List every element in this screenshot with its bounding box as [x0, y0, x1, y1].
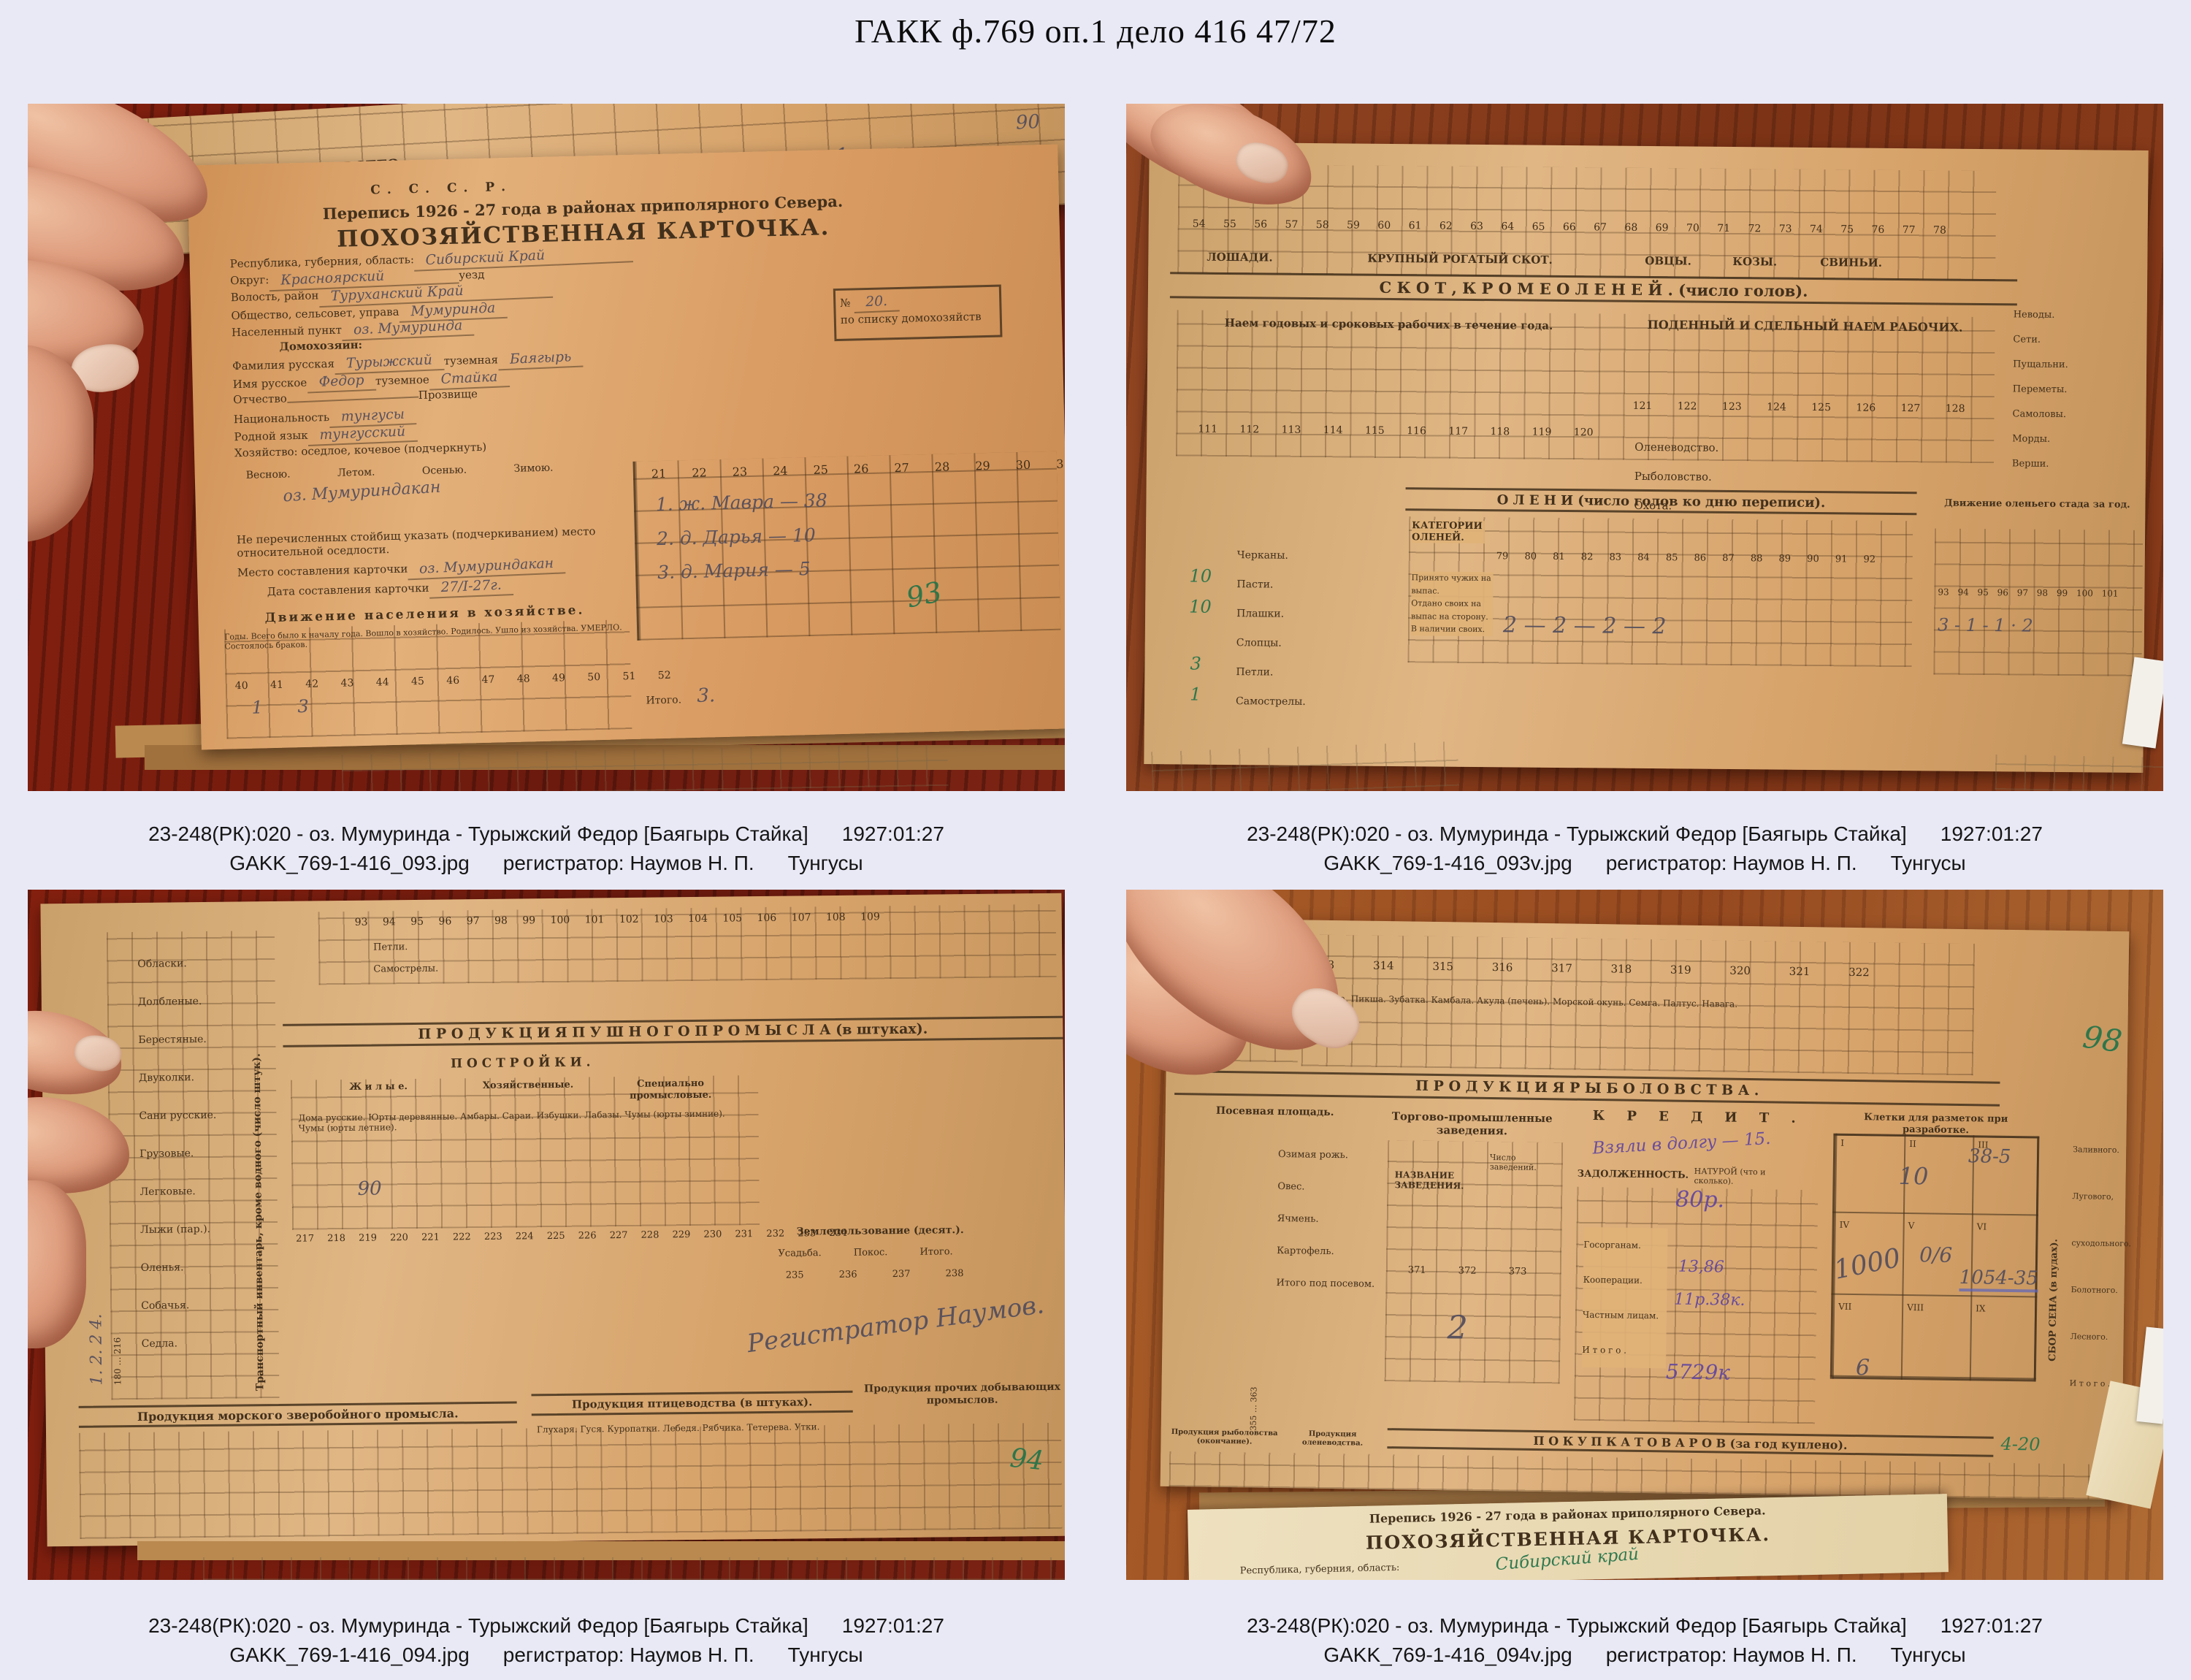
handwriting: оз. Мумуринда: [341, 318, 474, 341]
document-page: 54 55 56 57 58 59 60 61 62 63 64 65 66 6…: [1144, 142, 2148, 773]
handwriting: 10: [1189, 597, 1212, 617]
handwriting: 1 3: [251, 696, 309, 718]
table-label: ЗАДОЛЖЕННОСТЬ.: [1578, 1169, 1672, 1181]
table-grid: [1385, 1140, 1564, 1383]
document-page: 93 94 95 96 97 98 99 100 101 102 103 104…: [40, 893, 1065, 1547]
row-labels: Обласки. Долбленые. Берестяные. Двуколки…: [137, 944, 251, 1363]
list-number-box: № 20. по списку домохозяйств: [833, 285, 1003, 342]
caption-catalog: 23-248(РК):020 - оз. Мумуринда - Турыжск…: [1247, 1614, 1907, 1637]
table-grid: [291, 1075, 760, 1230]
section-band: Продукция птицеводства (в штуках).: [531, 1391, 852, 1416]
row-labels: Петли. Самострелы.: [373, 936, 438, 981]
note-text: Не перечисленных стойбищ указать (подчер…: [237, 524, 646, 560]
handwriting: 1: [1190, 684, 1201, 705]
table-grid: [1933, 528, 2143, 676]
column-numbers: 355 … 363: [1249, 1138, 1263, 1430]
row-labels: Заливного. Лугового, суходольного. Болот…: [2069, 1126, 2127, 1408]
section-band: П Р О Д У К Ц И Я П У Ш Н О Г О П Р О М …: [283, 1016, 1063, 1047]
movement-total-label: Итого.: [646, 694, 681, 707]
handwriting: 4-20: [2000, 1434, 2040, 1455]
handwriting: [287, 396, 418, 403]
document-page: С. С. С. Р. Перепись 1926 - 27 года в ра…: [187, 145, 1065, 750]
caption-registrar: регистратор: Наумов Н. П.: [503, 1643, 754, 1666]
photo-caption-094v: 23-248(РК):020 - оз. Мумуринда - Турыжск…: [1126, 1611, 2163, 1670]
handwriting: оз. Мумуриндакан: [408, 555, 566, 580]
section-header: Посевная площадь.: [1180, 1104, 1370, 1119]
section-band: Продукция морского зверобойного промысла…: [79, 1402, 517, 1428]
caption-date: 1927:01:27: [1940, 1614, 2043, 1637]
photo-caption-094: 23-248(РК):020 - оз. Мумуринда - Турыжск…: [28, 1611, 1065, 1670]
caption-file: GAKK_769-1-416_094v.jpg: [1323, 1643, 1572, 1666]
sheet-number: 94: [1009, 1443, 1045, 1477]
caption-catalog: 23-248(РК):020 - оз. Мумуринда - Турыжск…: [148, 822, 808, 845]
sheet-number: 98: [2081, 1019, 2125, 1060]
handwriting: 90: [357, 1177, 381, 1199]
deer-categories-label: КАТЕГОРИИ ОЛЕНЕЙ.: [1412, 520, 1485, 543]
caption-line-2: GAKK_769-1-416_093v.jpgрегистратор: Наум…: [1126, 849, 2163, 878]
handwriting: 5729к: [1666, 1359, 1730, 1384]
handwriting: 3: [1190, 654, 1201, 674]
registrar-signature: Регистратор Наумов.: [746, 1290, 1046, 1359]
photo-caption-093v: 23-248(РК):020 - оз. Мумуринда - Турыжск…: [1126, 820, 2163, 878]
caption-catalog: 23-248(РК):020 - оз. Мумуринда - Турыжск…: [1247, 822, 1907, 845]
photo-094v[interactable]: Добыто за год. ВСЕГО. Госорганам. Коопер…: [1126, 890, 2163, 1580]
handwriting: 3.: [697, 684, 716, 707]
paper-slip: [2136, 1326, 2163, 1424]
caption-line-1: 23-248(РК):020 - оз. Мумуринда - Турыжск…: [28, 820, 1065, 849]
section-header: Продукция рыболовства (окончание).: [1169, 1428, 1279, 1447]
section-header: Торгово-промышленные заведения.: [1384, 1110, 1559, 1138]
handwriting: 20.: [854, 293, 900, 313]
handwriting: 1054-35: [1959, 1267, 2038, 1293]
row-labels: Неводы. Сети. Пущальни. Переметы. Самоло…: [2012, 302, 2108, 477]
group-header: СВИНЬИ.: [1820, 256, 1882, 270]
handwriting: оз. Мумуриндакан: [283, 478, 441, 506]
section-header: Продукция оленеводства.: [1285, 1429, 1380, 1448]
row-labels: Принято чужих на выпас. Отдано своих на …: [1411, 571, 1494, 636]
roman-numeral: IV: [1840, 1220, 1850, 1231]
row-labels: Озимая рожь. Овес. Ячмень. Картофель. Ит…: [1276, 1139, 1388, 1301]
column-labels: Усадьба. Покос. Итого.: [778, 1246, 952, 1259]
photo-caption-093: 23-248(РК):020 - оз. Мумуринда - Турыжск…: [28, 820, 1065, 878]
list-number-label: №: [840, 297, 851, 310]
roman-numeral: V: [1908, 1221, 1915, 1232]
caption-line-2: GAKK_769-1-416_094v.jpgрегистратор: Наум…: [1126, 1641, 2163, 1670]
photo-093v[interactable]: 54 55 56 57 58 59 60 61 62 63 64 65 66 6…: [1126, 104, 2163, 791]
handwriting: 13,86: [1678, 1258, 1724, 1277]
caption-registrar: регистратор: Наумов Н. П.: [1606, 852, 1857, 874]
caption-line-1: 23-248(РК):020 - оз. Мумуринда - Турыжск…: [1126, 1611, 2163, 1641]
graph-paper-sheet: [1995, 755, 2163, 791]
archive-page: { "page": { "title": "ГАКК ф.769 оп.1 де…: [0, 0, 2191, 1680]
column-numbers: 93 94 95 96 97 98 99 100 101: [1938, 587, 2118, 598]
section-header: Движение оленьего стада за год.: [1931, 497, 2143, 511]
caption-registrar: регистратор: Наумов Н. П.: [503, 852, 754, 874]
caption-ethnos: Тунгусы: [1891, 1643, 1966, 1666]
caption-date: 1927:01:27: [842, 822, 944, 845]
photo-093[interactable]: ВСЕГО. Добыто за год. 100. 1. 90 С. С. С…: [28, 104, 1065, 791]
handwriting: 2. д. Дарья — 10: [657, 524, 816, 549]
land-title: Землепользование (десят.).: [774, 1224, 986, 1239]
group-header: КРУПНЫЙ РОГАТЫЙ СКОТ.: [1367, 252, 1553, 267]
caption-date: 1927:01:27: [842, 1614, 944, 1637]
section-band: О Л Е Н И (число голов ко дню переписи).: [1405, 487, 1916, 515]
handwriting: 2 — 2 — 2 — 2: [1503, 612, 1667, 639]
form-label: Республика, губерния, область:: [1240, 1562, 1400, 1577]
section-header: Продукция прочих добывающих промыслов.: [863, 1381, 1060, 1408]
handwriting: 0/6: [1919, 1242, 1953, 1267]
section-header-vertical: СБОР СЕНА (в пудах).: [2047, 1120, 2062, 1362]
table-label: НАТУРОЙ (что и сколько).: [1694, 1167, 1789, 1187]
ussr-header: С. С. С. Р.: [370, 180, 512, 198]
roman-numeral: IX: [1976, 1303, 1985, 1314]
handwriting: 27/I-27г.: [429, 577, 513, 598]
form-row: Домохозяин:: [279, 338, 362, 354]
group-header: ОВЦЫ.: [1645, 254, 1691, 268]
roman-numeral: VI: [1977, 1221, 1987, 1232]
handwriting: 3 - 1 - 1 · 2: [1938, 614, 2033, 635]
tissue-sheet: [203, 1557, 1065, 1580]
next-card-top: Перепись 1926 - 27 года в районах припол…: [1188, 1494, 1949, 1580]
group-header: КОЗЫ.: [1732, 255, 1777, 269]
handwriting: 10: [1189, 566, 1212, 587]
section-header: П О С Т Р О Й К И .: [283, 1053, 758, 1073]
handwriting: 2: [1447, 1309, 1468, 1346]
caption-registrar: регистратор: Наумов Н. П.: [1606, 1643, 1857, 1666]
caption-ethnos: Тунгусы: [788, 1643, 863, 1666]
seasons-header: Весною. Летом. Осенью. Зимою.: [246, 462, 554, 481]
caption-file: GAKK_769-1-416_093.jpg: [229, 852, 469, 874]
roman-numeral: I: [1840, 1138, 1844, 1148]
handwriting: Взяли в долгу — 15.: [1592, 1129, 1771, 1158]
handwriting: Баягырь: [497, 349, 583, 370]
row-labels: Госорганам. Кооперации. Частным лицам. И…: [1582, 1227, 1668, 1369]
caption-line-2: GAKK_769-1-416_094.jpgрегистратор: Наумо…: [28, 1641, 1065, 1670]
row-labels: Черканы. Пасти. Плашки. Слопцы. Петли. С…: [1236, 541, 1339, 717]
caption-line-1: 23-248(РК):020 - оз. Мумуринда - Турыжск…: [28, 1611, 1065, 1641]
caption-ethnos: Тунгусы: [788, 852, 863, 874]
caption-catalog: 23-248(РК):020 - оз. Мумуринда - Турыжск…: [148, 1614, 808, 1637]
handwriting: 38-5: [1968, 1145, 2011, 1168]
section-band: П Р О Д У К Ц И Я Р Ы Б О Л О В С Т В А …: [1174, 1070, 2000, 1107]
handwriting: 1. ж. Мавра — 38: [656, 489, 827, 515]
roman-numeral: II: [1909, 1139, 1916, 1150]
caption-line-1: 23-248(РК):020 - оз. Мумуринда - Турыжск…: [1126, 820, 2163, 849]
handwriting: 10: [1898, 1162, 1928, 1191]
handwriting: 90: [1015, 111, 1041, 134]
page-title: ГАКК ф.769 оп.1 дело 416 47/72: [0, 12, 2191, 50]
photo-094[interactable]: 93 94 95 96 97 98 99 100 101 102 103 104…: [28, 890, 1065, 1580]
section-header: К Р Е Д И Т .: [1575, 1108, 1823, 1127]
group-header: ЛОШАДИ.: [1207, 251, 1272, 264]
roman-numeral: VII: [1838, 1302, 1851, 1313]
handwriting: 6: [1856, 1355, 1870, 1381]
handwriting: 80р.: [1675, 1187, 1724, 1213]
table-grid: [79, 1423, 1062, 1539]
column-numbers: 217 218 219 220 221 222 223 224 225 226 …: [296, 1228, 847, 1245]
sheet-number: 93: [903, 576, 944, 614]
form-row: Дата составления карточки27/I-27г.: [267, 578, 513, 602]
form-row: Место составления карточкиоз. Мумуриндак…: [237, 557, 566, 582]
section-band: П О К У П К А Т О В А Р О В (за год купл…: [1387, 1428, 1993, 1457]
caption-date: 1927:01:27: [1940, 822, 2043, 845]
caption-ethnos: Тунгусы: [1891, 852, 1966, 874]
handwriting: 11р.38к.: [1674, 1291, 1745, 1310]
caption-file: GAKK_769-1-416_093v.jpg: [1323, 852, 1572, 874]
caption-file: GAKK_769-1-416_094.jpg: [229, 1643, 469, 1666]
roman-numeral: VIII: [1907, 1302, 1924, 1313]
column-numbers: 235 236 237 238: [786, 1268, 964, 1281]
caption-line-2: GAKK_769-1-416_093.jpgрегистратор: Наумо…: [28, 849, 1065, 878]
handwriting: 3. д. Мария — 5: [657, 558, 811, 583]
